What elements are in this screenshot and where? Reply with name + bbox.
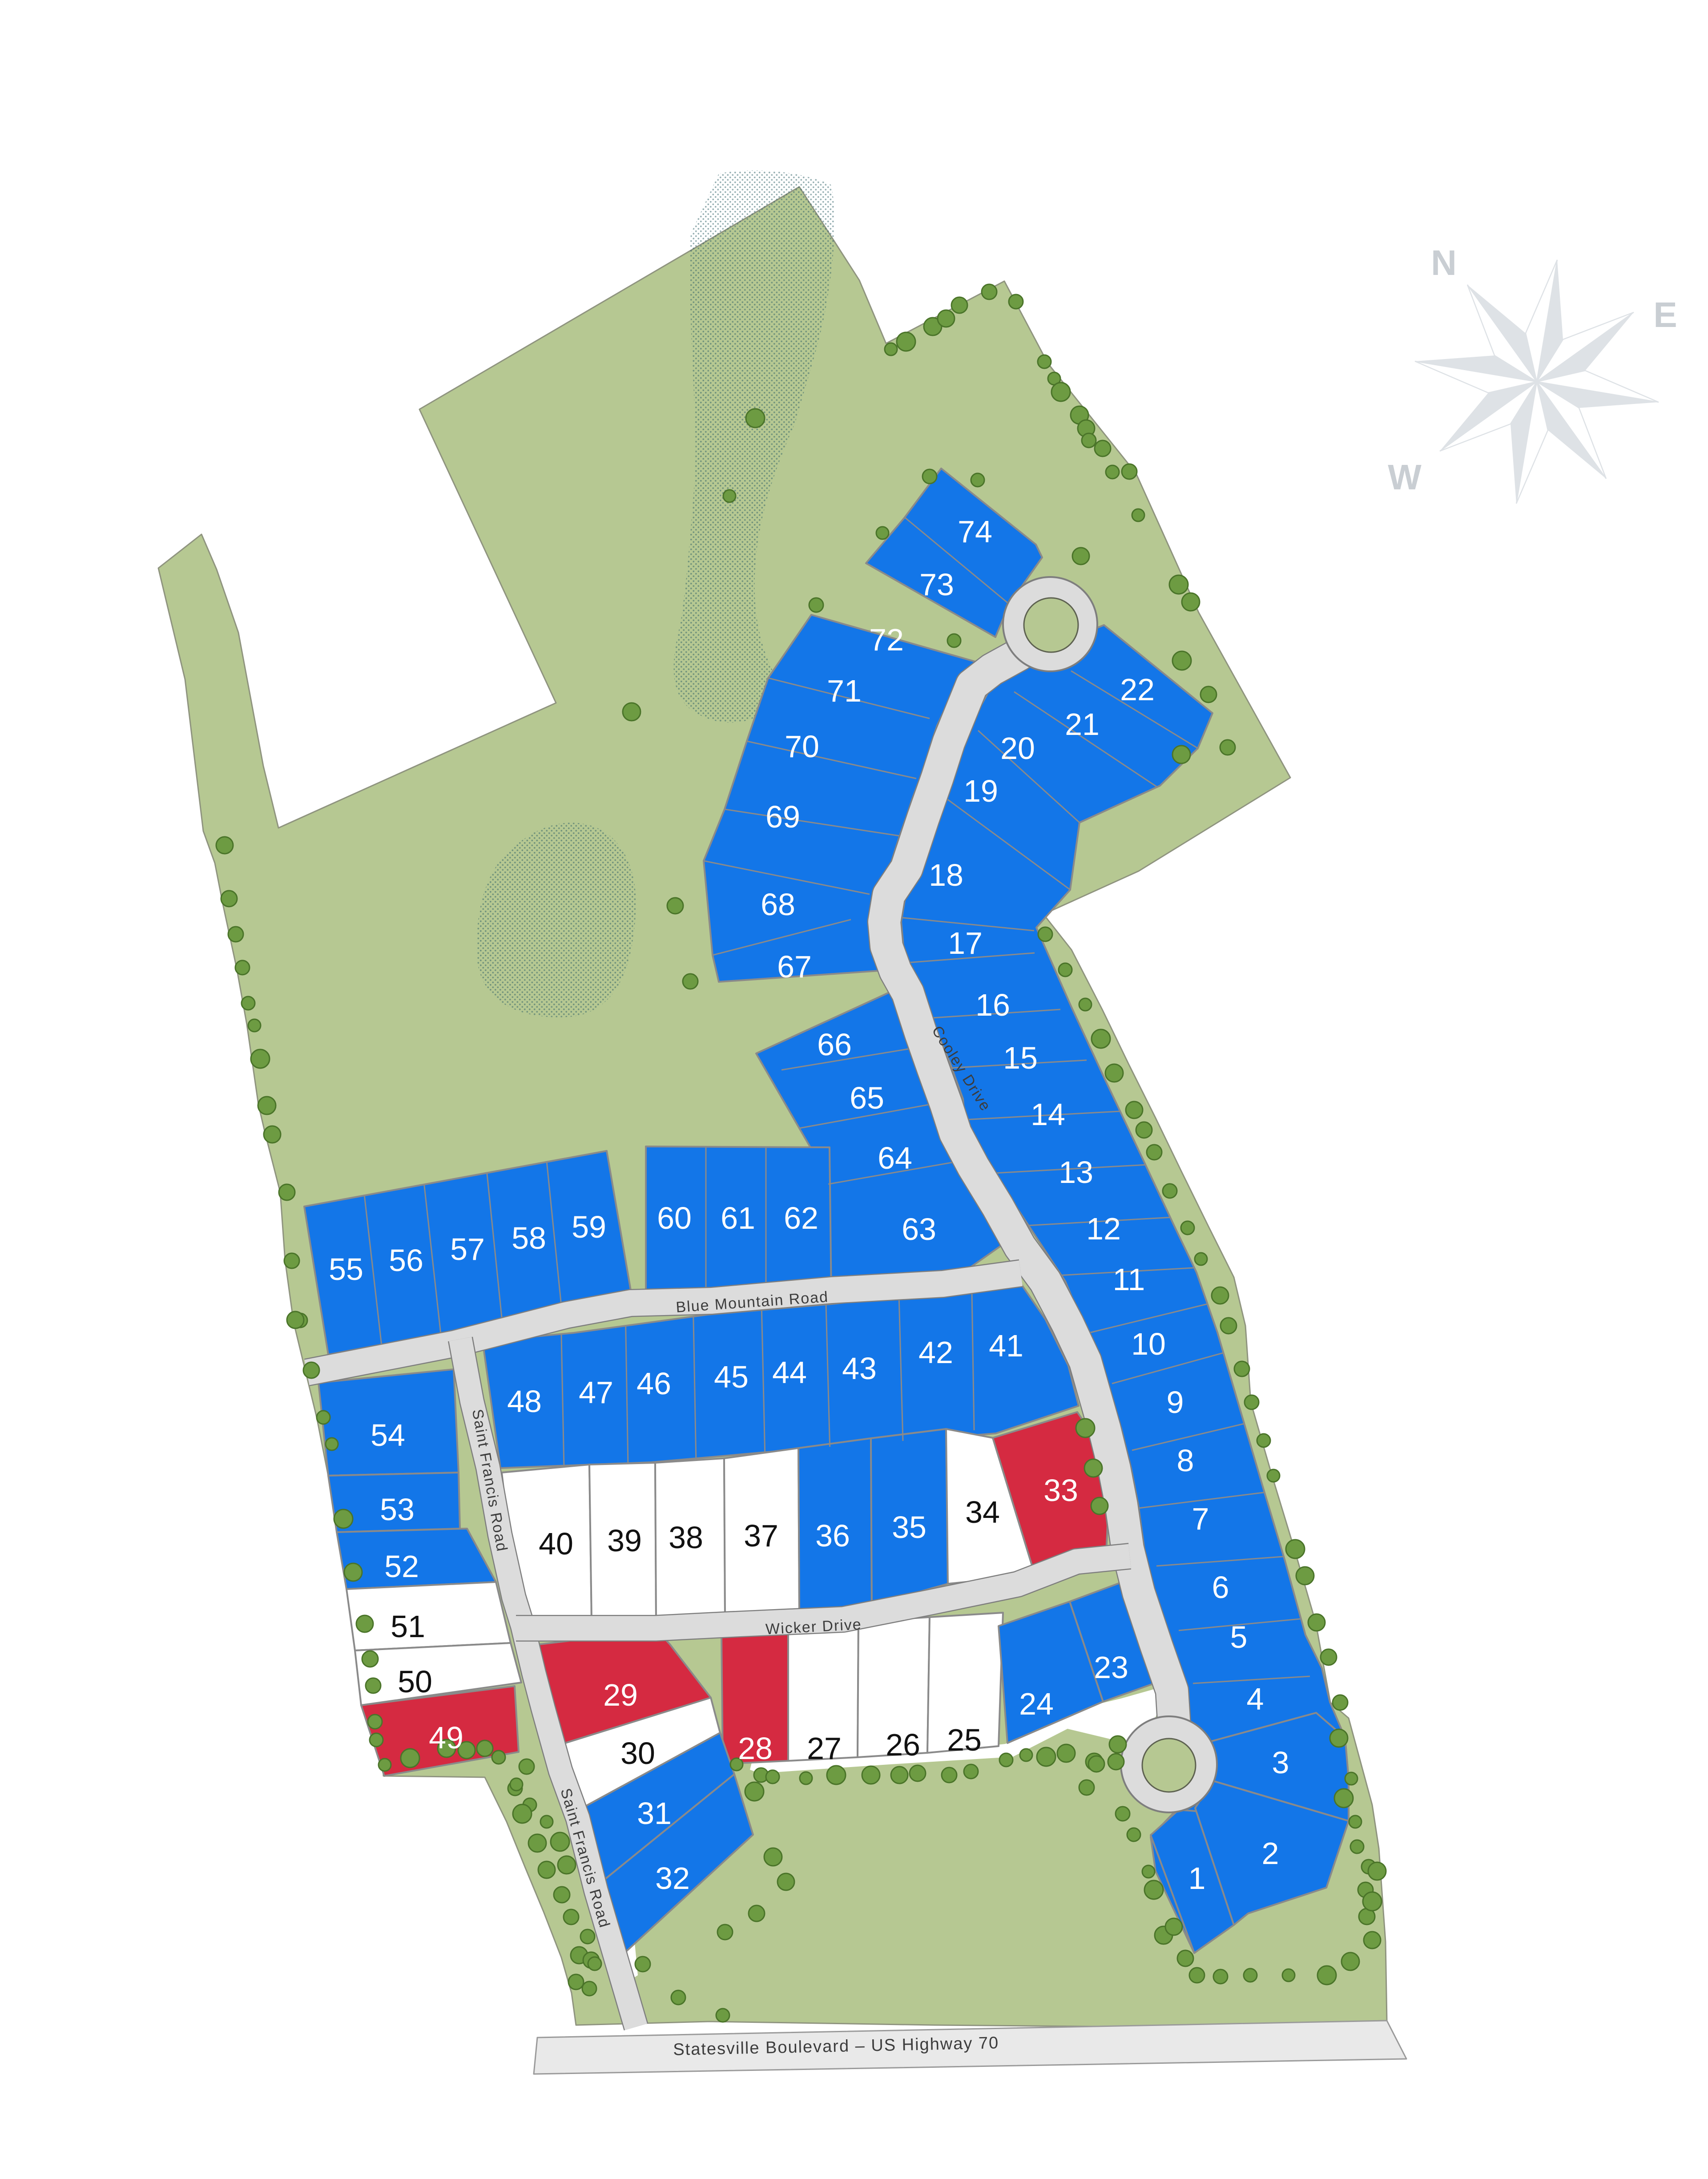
svg-text:1: 1	[1188, 1861, 1206, 1896]
svg-text:3: 3	[1272, 1745, 1289, 1780]
svg-text:50: 50	[398, 1664, 432, 1699]
svg-text:30: 30	[620, 1736, 655, 1771]
svg-text:N: N	[1431, 243, 1457, 282]
svg-text:27: 27	[807, 1731, 842, 1766]
svg-text:74: 74	[958, 514, 992, 549]
svg-text:58: 58	[512, 1221, 546, 1255]
svg-text:47: 47	[579, 1375, 613, 1410]
svg-text:59: 59	[572, 1210, 606, 1244]
svg-text:19: 19	[963, 774, 998, 808]
svg-text:7: 7	[1192, 1501, 1209, 1536]
svg-text:38: 38	[669, 1520, 703, 1555]
svg-text:21: 21	[1065, 707, 1100, 742]
svg-text:8: 8	[1177, 1443, 1194, 1478]
svg-text:16: 16	[975, 988, 1010, 1022]
svg-text:70: 70	[785, 729, 819, 764]
svg-text:W: W	[1388, 457, 1422, 497]
svg-text:49: 49	[429, 1720, 463, 1755]
svg-text:52: 52	[384, 1549, 419, 1584]
svg-text:4: 4	[1247, 1682, 1264, 1716]
svg-text:46: 46	[636, 1366, 671, 1401]
svg-text:23: 23	[1094, 1650, 1128, 1685]
svg-text:65: 65	[850, 1081, 884, 1115]
svg-text:60: 60	[657, 1201, 692, 1235]
svg-text:26: 26	[886, 1727, 920, 1762]
svg-text:55: 55	[329, 1252, 363, 1287]
svg-text:12: 12	[1086, 1211, 1121, 1246]
svg-text:63: 63	[902, 1212, 936, 1247]
svg-text:41: 41	[989, 1328, 1023, 1363]
svg-text:42: 42	[918, 1335, 953, 1370]
svg-text:37: 37	[744, 1518, 778, 1553]
svg-text:14: 14	[1031, 1097, 1065, 1132]
svg-text:45: 45	[714, 1360, 749, 1394]
svg-text:20: 20	[1000, 731, 1035, 766]
svg-text:33: 33	[1043, 1473, 1078, 1508]
svg-text:25: 25	[947, 1723, 982, 1757]
svg-text:72: 72	[869, 622, 904, 657]
svg-text:13: 13	[1059, 1155, 1093, 1190]
svg-text:66: 66	[817, 1027, 852, 1062]
svg-text:34: 34	[965, 1495, 1000, 1529]
svg-text:35: 35	[892, 1510, 927, 1545]
svg-text:43: 43	[842, 1351, 877, 1386]
svg-text:51: 51	[391, 1609, 425, 1644]
svg-text:44: 44	[772, 1355, 807, 1390]
svg-text:67: 67	[777, 949, 812, 984]
svg-text:53: 53	[380, 1492, 415, 1527]
svg-text:9: 9	[1167, 1385, 1184, 1420]
svg-text:62: 62	[784, 1201, 818, 1235]
svg-text:36: 36	[815, 1518, 850, 1553]
svg-text:54: 54	[371, 1418, 405, 1453]
svg-text:28: 28	[738, 1731, 773, 1766]
svg-text:32: 32	[655, 1861, 690, 1896]
svg-text:69: 69	[765, 799, 800, 834]
svg-text:73: 73	[919, 567, 954, 602]
svg-text:6: 6	[1212, 1570, 1229, 1605]
svg-text:22: 22	[1120, 672, 1155, 707]
svg-text:18: 18	[929, 858, 963, 892]
svg-text:24: 24	[1019, 1687, 1054, 1721]
svg-text:5: 5	[1230, 1620, 1248, 1654]
svg-text:64: 64	[878, 1141, 912, 1175]
svg-text:17: 17	[948, 926, 983, 960]
svg-text:40: 40	[539, 1526, 573, 1561]
svg-text:E: E	[1653, 295, 1677, 335]
svg-text:15: 15	[1003, 1041, 1038, 1075]
svg-text:11: 11	[1113, 1262, 1145, 1297]
svg-text:71: 71	[827, 674, 862, 708]
svg-text:57: 57	[450, 1232, 485, 1267]
svg-text:29: 29	[603, 1678, 638, 1712]
svg-text:2: 2	[1262, 1836, 1279, 1871]
svg-text:68: 68	[761, 887, 795, 922]
svg-text:56: 56	[389, 1243, 423, 1278]
svg-text:31: 31	[637, 1796, 672, 1831]
svg-text:61: 61	[721, 1201, 755, 1235]
svg-text:48: 48	[507, 1384, 542, 1419]
svg-text:39: 39	[607, 1523, 642, 1558]
svg-text:10: 10	[1131, 1327, 1166, 1361]
